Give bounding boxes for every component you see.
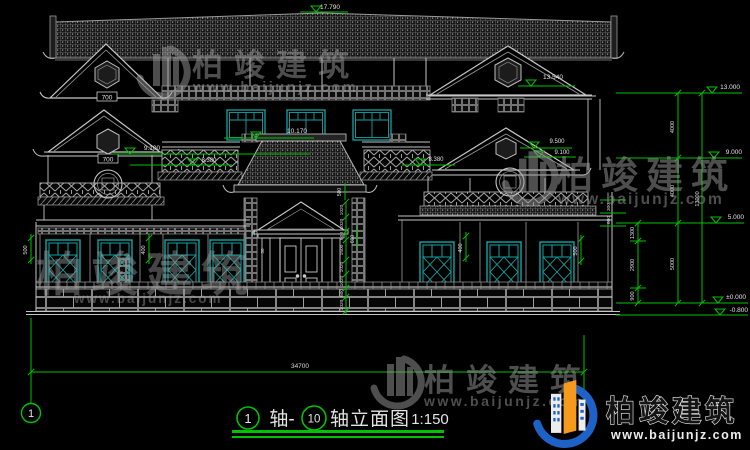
level-minus800: -0.800 bbox=[730, 307, 749, 314]
svg-text:1500: 1500 bbox=[339, 244, 345, 255]
svg-text:1020: 1020 bbox=[339, 204, 345, 215]
watermark-url: www.baijunjz.com bbox=[73, 291, 223, 306]
level-13000: 13.000 bbox=[720, 84, 740, 91]
hex-label-upper: 700 bbox=[102, 95, 113, 102]
dim-seg1: 4000 bbox=[670, 121, 676, 133]
svg-text:1020: 1020 bbox=[339, 218, 345, 229]
brand-logo-url: www.baijunjz.com bbox=[610, 428, 743, 442]
dim-eave-drop: 500 bbox=[337, 188, 343, 197]
dim-sub3: 900 bbox=[630, 291, 636, 300]
dim-eave600: 600 bbox=[606, 216, 612, 224]
dim-sub1: 1300 bbox=[630, 227, 636, 239]
svg-text:600: 600 bbox=[339, 289, 345, 297]
left-gable-lower: 700 bbox=[33, 110, 179, 164]
title-underline-2 bbox=[232, 436, 444, 438]
marker-ridge: 17.790 bbox=[320, 4, 340, 11]
axis-number-1: 1 bbox=[28, 408, 34, 420]
watermark-lower-left: 柏竣建筑 www.baijunjz.com bbox=[36, 248, 256, 306]
title-join: 轴- bbox=[269, 408, 294, 430]
svg-text:600: 600 bbox=[339, 232, 345, 240]
level-zero: ±0.000 bbox=[726, 294, 746, 301]
hex-label-lower: 700 bbox=[103, 157, 114, 164]
svg-text:1020: 1020 bbox=[339, 261, 345, 272]
ground-line bbox=[26, 312, 620, 315]
marker-13540: 13.540 bbox=[543, 74, 563, 81]
watermark-brand: 柏竣建筑 bbox=[556, 154, 736, 196]
title-scale: 1:150 bbox=[411, 411, 449, 428]
level-5000: 5.000 bbox=[728, 214, 745, 221]
title-axis-end: 10 bbox=[308, 414, 321, 426]
watermark-brand: 柏竣建筑 bbox=[192, 48, 360, 83]
dim-left-overhang: 500 bbox=[23, 245, 29, 254]
title-underline-1 bbox=[232, 430, 444, 433]
watermark-url: www.baijunjz.com bbox=[192, 80, 358, 96]
dim-tiny-a: 30 bbox=[251, 230, 256, 236]
title-block: 1 轴- 10 轴立面图 1:150 bbox=[232, 406, 449, 438]
dim-right-overhang: 500 bbox=[573, 246, 579, 255]
drawing-canvas: 700 700 bbox=[0, 0, 750, 450]
marker-9500: 9.500 bbox=[549, 139, 565, 145]
title-axis-start: 1 bbox=[244, 411, 251, 426]
watermark-url: www.baijunjz.com bbox=[557, 191, 724, 208]
dim-sub2: 2900 bbox=[630, 259, 636, 271]
title-name: 轴立面图 bbox=[330, 408, 410, 430]
entrance-roof bbox=[223, 134, 377, 192]
svg-text:1020: 1020 bbox=[339, 275, 345, 286]
dim-door-side: 600 bbox=[350, 235, 356, 244]
dim-tiny-b: 30 bbox=[260, 248, 265, 254]
cad-elevation-drawing: 700 700 bbox=[0, 0, 750, 450]
pediment bbox=[258, 202, 344, 230]
marker-10170: 10.170 bbox=[287, 128, 307, 135]
dim-right-bay: 400 bbox=[458, 243, 464, 252]
brand-logo-corner: 柏竣建筑 www.baijunjz.com bbox=[537, 380, 743, 444]
brand-logo-text: 柏竣建筑 bbox=[606, 394, 738, 428]
svg-text:1020: 1020 bbox=[339, 299, 345, 310]
marker-8380-right: 8.380 bbox=[428, 157, 444, 163]
dim-total-width: 34700 bbox=[291, 363, 309, 370]
dim-seg3: 5000 bbox=[670, 258, 676, 270]
marker-9100-left: 9.100 bbox=[144, 145, 161, 152]
marker-8380-left: 8.380 bbox=[201, 158, 217, 164]
